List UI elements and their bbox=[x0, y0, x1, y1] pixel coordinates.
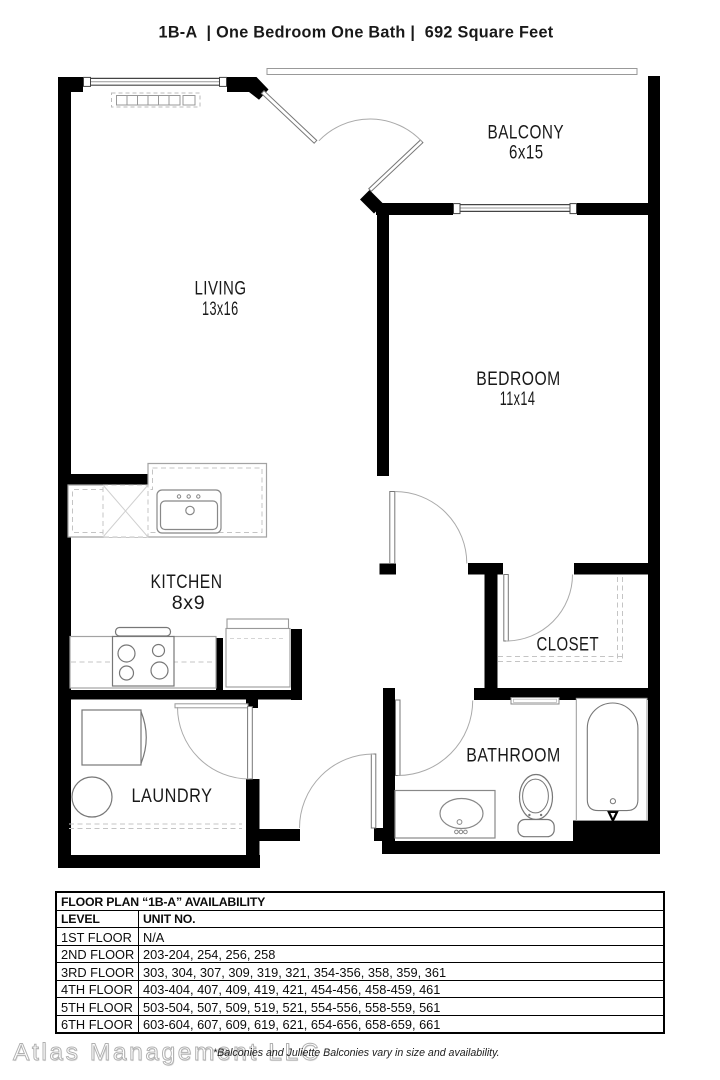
svg-text:LIVING: LIVING bbox=[195, 277, 247, 299]
svg-text:BATHROOM: BATHROOM bbox=[466, 745, 561, 767]
svg-text:KITCHEN: KITCHEN bbox=[151, 571, 223, 593]
svg-text:1B-A | One Bedroom One Bath |: 1B-A | One Bedroom One Bath | 692 Square… bbox=[159, 24, 554, 42]
svg-text:13x16: 13x16 bbox=[202, 298, 239, 320]
svg-text:6x15: 6x15 bbox=[509, 142, 544, 164]
svg-text:11x14: 11x14 bbox=[500, 388, 536, 410]
svg-text:8x9: 8x9 bbox=[172, 592, 206, 614]
svg-text:CLOSET: CLOSET bbox=[537, 634, 600, 656]
svg-text:BEDROOM: BEDROOM bbox=[476, 368, 561, 390]
svg-text:LAUNDRY: LAUNDRY bbox=[132, 785, 213, 807]
svg-text:BALCONY: BALCONY bbox=[488, 122, 565, 144]
